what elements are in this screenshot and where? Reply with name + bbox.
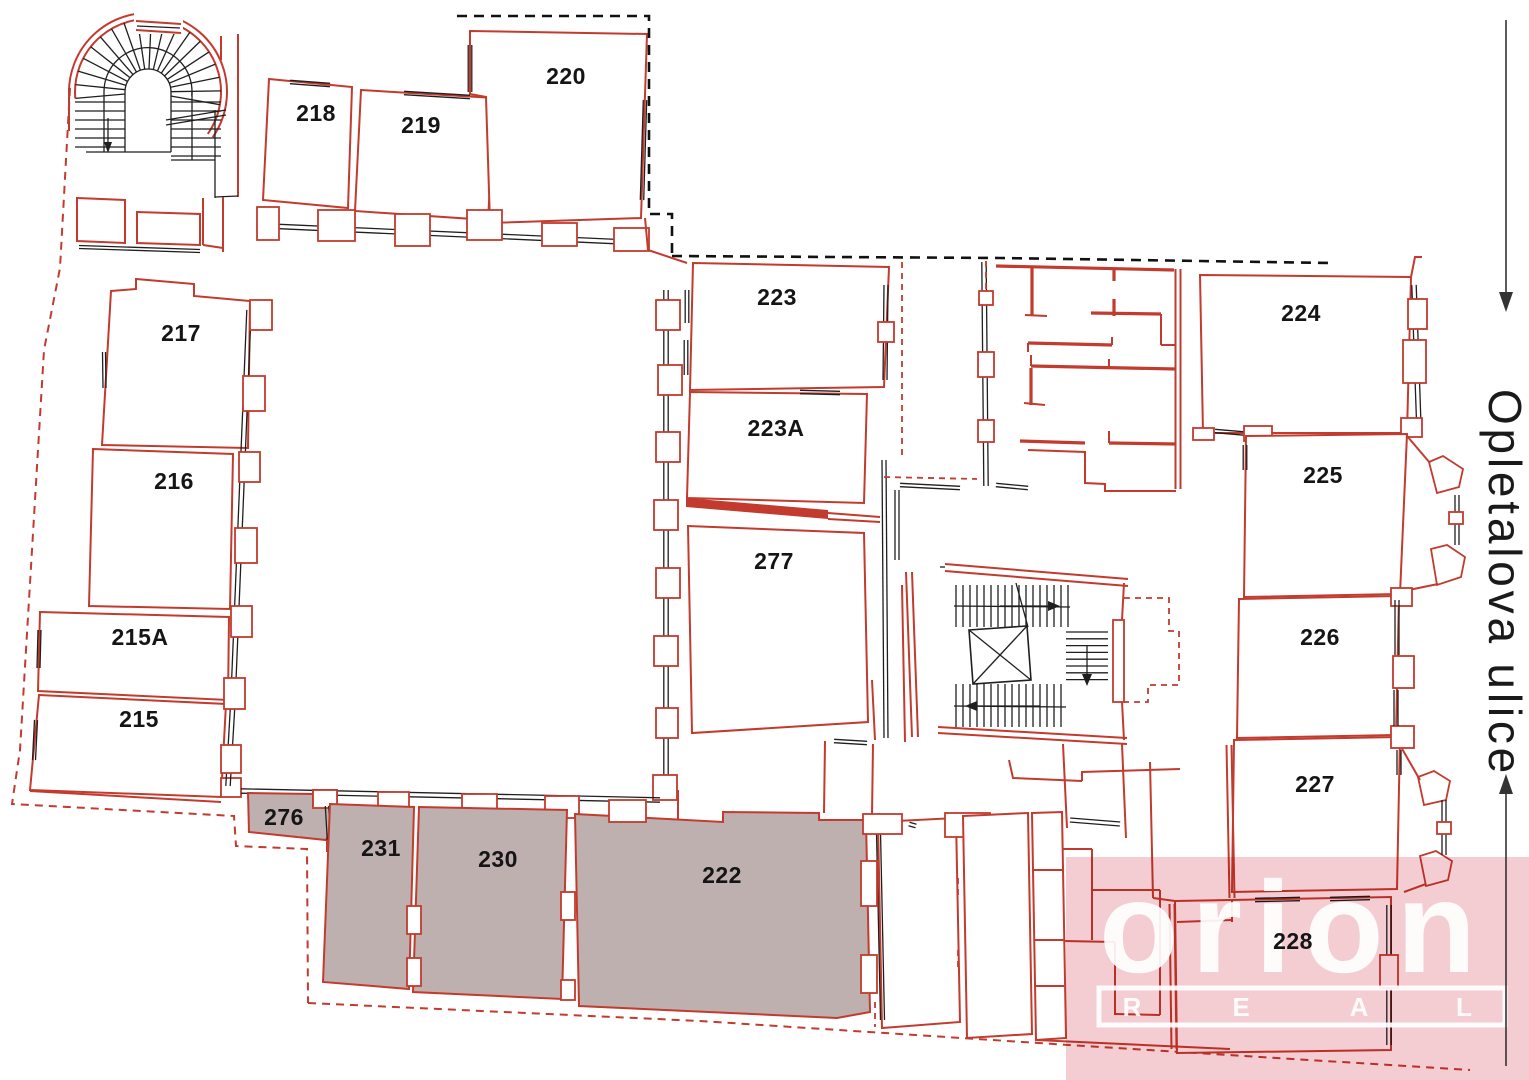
svg-text:226: 226 <box>1300 624 1340 650</box>
svg-text:R: R <box>1123 992 1142 1022</box>
svg-text:225: 225 <box>1303 462 1343 488</box>
svg-text:Opletalova ulice: Opletalova ulice <box>1479 389 1529 777</box>
svg-text:220: 220 <box>546 63 586 89</box>
svg-text:216: 216 <box>154 468 194 494</box>
svg-text:223A: 223A <box>748 415 805 441</box>
svg-text:228: 228 <box>1273 928 1313 954</box>
svg-text:231: 231 <box>361 835 401 861</box>
svg-text:230: 230 <box>478 846 518 872</box>
svg-text:277: 277 <box>754 548 794 574</box>
svg-text:222: 222 <box>702 862 742 888</box>
svg-text:A: A <box>1350 992 1369 1022</box>
svg-text:215A: 215A <box>112 624 169 650</box>
svg-text:orion: orion <box>1099 854 1489 1000</box>
svg-text:L: L <box>1456 992 1472 1022</box>
svg-text:224: 224 <box>1281 300 1321 326</box>
svg-text:276: 276 <box>264 804 304 830</box>
svg-text:215: 215 <box>119 706 159 732</box>
svg-text:219: 219 <box>401 112 441 138</box>
svg-text:223: 223 <box>757 284 797 310</box>
svg-text:217: 217 <box>161 320 201 346</box>
svg-text:227: 227 <box>1295 771 1335 797</box>
svg-text:218: 218 <box>296 100 336 126</box>
svg-text:E: E <box>1232 992 1249 1022</box>
